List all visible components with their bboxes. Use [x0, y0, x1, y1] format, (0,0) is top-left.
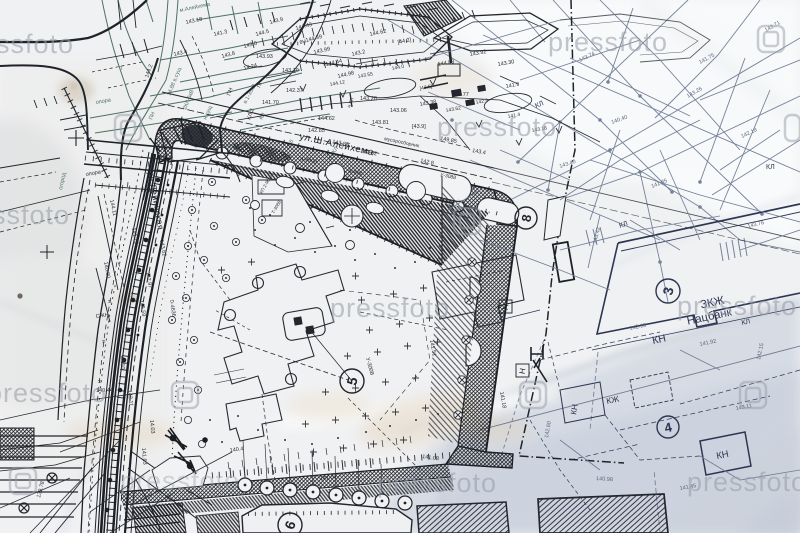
svg-text:pressfoto: pressfoto — [120, 466, 240, 496]
svg-text:КН: КН — [715, 449, 729, 462]
svg-text:143.93: 143.93 — [256, 54, 273, 60]
svg-text:pressfoto: pressfoto — [687, 467, 800, 497]
svg-text:КН: КН — [569, 403, 580, 415]
svg-text:pressfoto: pressfoto — [377, 468, 497, 498]
svg-text:142.85: 142.85 — [308, 128, 325, 134]
svg-text:143.81: 143.81 — [372, 120, 389, 126]
svg-text:143.06: 143.06 — [390, 108, 407, 114]
svg-text:142.37: 142.37 — [286, 88, 303, 94]
svg-text:pressfoto: pressfoto — [0, 29, 74, 59]
svg-text:141.70: 141.70 — [262, 100, 279, 106]
svg-text:pressfoto: pressfoto — [330, 293, 450, 323]
svg-text:144.62: 144.62 — [318, 116, 335, 122]
svg-text:КЛ: КЛ — [766, 164, 775, 171]
svg-text:pressfoto: pressfoto — [677, 291, 797, 321]
svg-text:[43.9]: [43.9] — [412, 124, 426, 130]
svg-text:pressfoto: pressfoto — [437, 112, 557, 142]
svg-text:140.98: 140.98 — [596, 476, 613, 483]
svg-text:pressfoto: pressfoto — [0, 200, 70, 230]
svg-text:pressfoto: pressfoto — [0, 378, 107, 408]
svg-text:pressfoto: pressfoto — [548, 27, 668, 57]
svg-text:143.28: 143.28 — [360, 96, 377, 102]
